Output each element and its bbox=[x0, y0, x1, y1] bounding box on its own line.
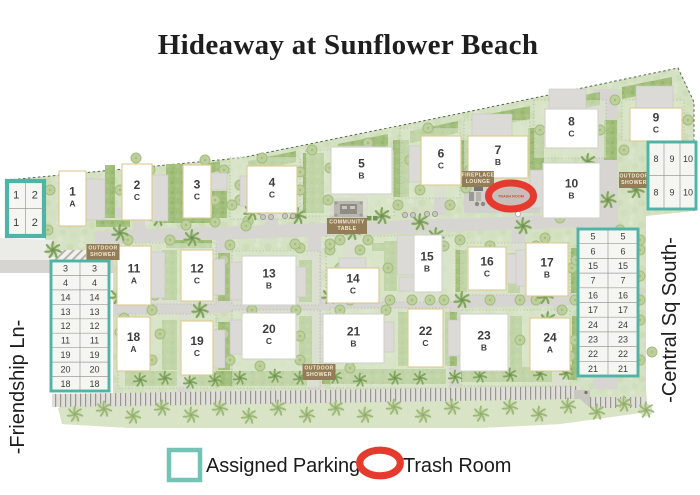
svg-text:13: 13 bbox=[262, 267, 276, 281]
svg-text:B: B bbox=[266, 281, 272, 291]
svg-text:Assigned Parking: Assigned Parking bbox=[206, 455, 360, 477]
svg-text:17: 17 bbox=[540, 256, 554, 270]
svg-text:8: 8 bbox=[568, 115, 575, 129]
svg-text:12: 12 bbox=[89, 321, 99, 331]
svg-text:FIREPLACE: FIREPLACE bbox=[462, 172, 495, 178]
svg-text:B: B bbox=[350, 339, 356, 349]
svg-text:22: 22 bbox=[618, 349, 628, 359]
svg-text:18: 18 bbox=[89, 379, 99, 389]
svg-text:TRASH ROOM: TRASH ROOM bbox=[498, 194, 524, 198]
svg-text:OUTDOOR: OUTDOOR bbox=[88, 245, 117, 251]
svg-text:A: A bbox=[547, 345, 553, 355]
svg-text:C: C bbox=[484, 269, 490, 279]
svg-text:B: B bbox=[544, 270, 550, 280]
svg-text:10: 10 bbox=[683, 154, 693, 164]
svg-text:5: 5 bbox=[590, 232, 595, 242]
svg-text:16: 16 bbox=[618, 290, 628, 300]
svg-text:C: C bbox=[194, 276, 200, 286]
svg-text:-Central Sq South-: -Central Sq South- bbox=[659, 237, 681, 403]
svg-text:Trash Room: Trash Room bbox=[403, 455, 511, 477]
svg-text:8: 8 bbox=[653, 154, 658, 164]
svg-text:9: 9 bbox=[669, 188, 674, 198]
svg-text:21: 21 bbox=[618, 364, 628, 374]
svg-text:A: A bbox=[69, 199, 75, 209]
svg-text:13: 13 bbox=[89, 307, 99, 317]
svg-text:6: 6 bbox=[620, 246, 625, 256]
svg-text:2: 2 bbox=[32, 217, 38, 229]
svg-text:24: 24 bbox=[618, 320, 628, 330]
svg-text:18: 18 bbox=[127, 330, 141, 344]
svg-text:23: 23 bbox=[618, 335, 628, 345]
svg-text:B: B bbox=[424, 264, 430, 274]
svg-text:C: C bbox=[422, 338, 428, 348]
svg-text:13: 13 bbox=[60, 307, 70, 317]
svg-text:14: 14 bbox=[346, 272, 360, 286]
svg-text:LOUNGE: LOUNGE bbox=[466, 179, 491, 185]
svg-text:20: 20 bbox=[89, 365, 99, 375]
svg-text:5: 5 bbox=[620, 232, 625, 242]
svg-text:10: 10 bbox=[565, 177, 579, 191]
svg-text:C: C bbox=[438, 161, 444, 171]
svg-text:22: 22 bbox=[588, 349, 598, 359]
svg-text:24: 24 bbox=[588, 320, 598, 330]
svg-text:14: 14 bbox=[60, 292, 70, 302]
svg-text:C: C bbox=[266, 336, 272, 346]
svg-text:20: 20 bbox=[60, 365, 70, 375]
svg-text:12: 12 bbox=[190, 262, 204, 276]
svg-text:15: 15 bbox=[618, 261, 628, 271]
svg-text:10: 10 bbox=[683, 188, 693, 198]
svg-text:6: 6 bbox=[438, 147, 445, 161]
svg-text:C: C bbox=[350, 286, 356, 296]
svg-text:16: 16 bbox=[588, 290, 598, 300]
svg-text:17: 17 bbox=[618, 305, 628, 315]
svg-text:A: A bbox=[130, 344, 136, 354]
svg-text:11: 11 bbox=[128, 262, 141, 276]
svg-text:3: 3 bbox=[63, 264, 68, 274]
svg-text:17: 17 bbox=[588, 305, 598, 315]
svg-text:B: B bbox=[568, 191, 574, 201]
svg-text:COMMUNITY: COMMUNITY bbox=[329, 219, 365, 225]
svg-text:8: 8 bbox=[653, 188, 658, 198]
svg-text:C: C bbox=[568, 129, 574, 139]
svg-text:9: 9 bbox=[669, 154, 674, 164]
svg-text:B: B bbox=[481, 343, 487, 353]
svg-text:23: 23 bbox=[588, 335, 598, 345]
svg-text:1: 1 bbox=[13, 190, 19, 202]
svg-text:SHOWER: SHOWER bbox=[621, 180, 647, 186]
svg-text:Hideaway at Sunflower Beach: Hideaway at Sunflower Beach bbox=[158, 29, 539, 61]
svg-text:21: 21 bbox=[347, 325, 361, 339]
svg-text:C: C bbox=[269, 190, 275, 200]
svg-text:SHOWER: SHOWER bbox=[306, 372, 332, 378]
svg-text:A: A bbox=[131, 276, 137, 286]
svg-text:5: 5 bbox=[358, 157, 365, 171]
svg-text:6: 6 bbox=[590, 246, 595, 256]
svg-text:3: 3 bbox=[92, 264, 97, 274]
svg-text:1: 1 bbox=[13, 217, 19, 229]
svg-text:OUTDOOR: OUTDOOR bbox=[619, 173, 648, 179]
svg-text:B: B bbox=[358, 171, 364, 181]
svg-text:15: 15 bbox=[588, 261, 598, 271]
svg-text:21: 21 bbox=[588, 364, 598, 374]
svg-text:24: 24 bbox=[543, 331, 557, 345]
svg-text:16: 16 bbox=[480, 255, 494, 269]
svg-text:11: 11 bbox=[90, 336, 99, 346]
svg-text:23: 23 bbox=[477, 329, 491, 343]
svg-text:2: 2 bbox=[134, 178, 141, 192]
svg-text:3: 3 bbox=[194, 178, 201, 192]
svg-text:22: 22 bbox=[419, 324, 433, 338]
svg-text:7: 7 bbox=[620, 276, 625, 286]
svg-text:-Friendship Ln-: -Friendship Ln- bbox=[7, 320, 29, 455]
svg-text:19: 19 bbox=[89, 350, 99, 360]
svg-text:C: C bbox=[194, 192, 200, 202]
svg-text:2: 2 bbox=[32, 190, 38, 202]
svg-text:4: 4 bbox=[63, 278, 68, 288]
svg-text:1: 1 bbox=[69, 185, 76, 199]
svg-text:C: C bbox=[653, 125, 659, 135]
svg-text:7: 7 bbox=[590, 276, 595, 286]
svg-text:15: 15 bbox=[420, 250, 434, 264]
svg-text:14: 14 bbox=[89, 292, 99, 302]
svg-text:OUTDOOR: OUTDOOR bbox=[304, 365, 333, 371]
svg-text:4: 4 bbox=[92, 278, 97, 288]
svg-text:9: 9 bbox=[653, 111, 660, 125]
svg-text:11: 11 bbox=[61, 336, 70, 346]
svg-text:19: 19 bbox=[190, 334, 204, 348]
svg-text:SHOWER: SHOWER bbox=[90, 252, 116, 258]
svg-text:4: 4 bbox=[269, 176, 276, 190]
svg-text:18: 18 bbox=[60, 379, 70, 389]
svg-text:12: 12 bbox=[60, 321, 70, 331]
svg-text:20: 20 bbox=[262, 322, 276, 336]
svg-text:B: B bbox=[495, 157, 501, 167]
svg-text:C: C bbox=[134, 192, 140, 202]
svg-text:7: 7 bbox=[495, 143, 502, 157]
svg-text:C: C bbox=[194, 348, 200, 358]
svg-text:TABLE: TABLE bbox=[338, 226, 357, 232]
svg-text:19: 19 bbox=[60, 350, 70, 360]
